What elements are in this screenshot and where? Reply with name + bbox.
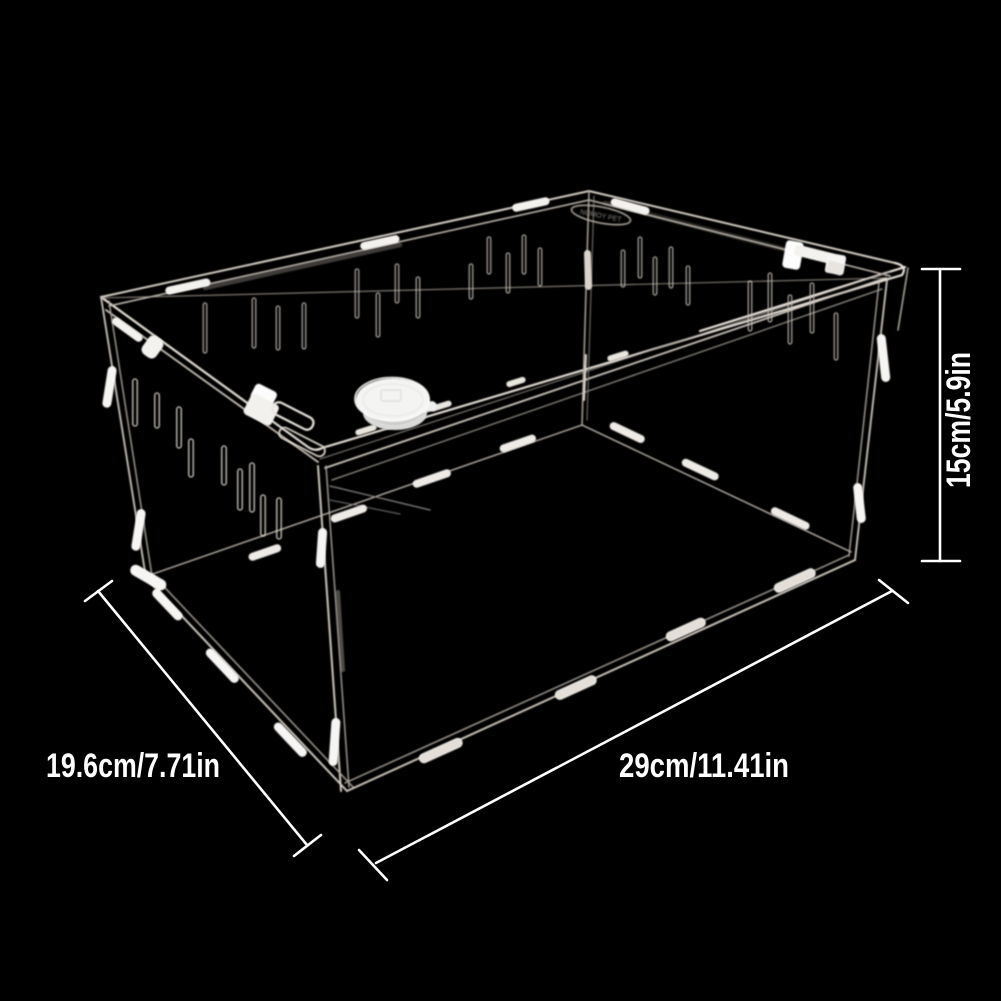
svg-text:29cm/11.41in: 29cm/11.41in <box>619 747 789 785</box>
svg-text:19.6cm/7.71in: 19.6cm/7.71in <box>46 747 220 785</box>
svg-text:15cm/5.9in: 15cm/5.9in <box>940 352 978 488</box>
